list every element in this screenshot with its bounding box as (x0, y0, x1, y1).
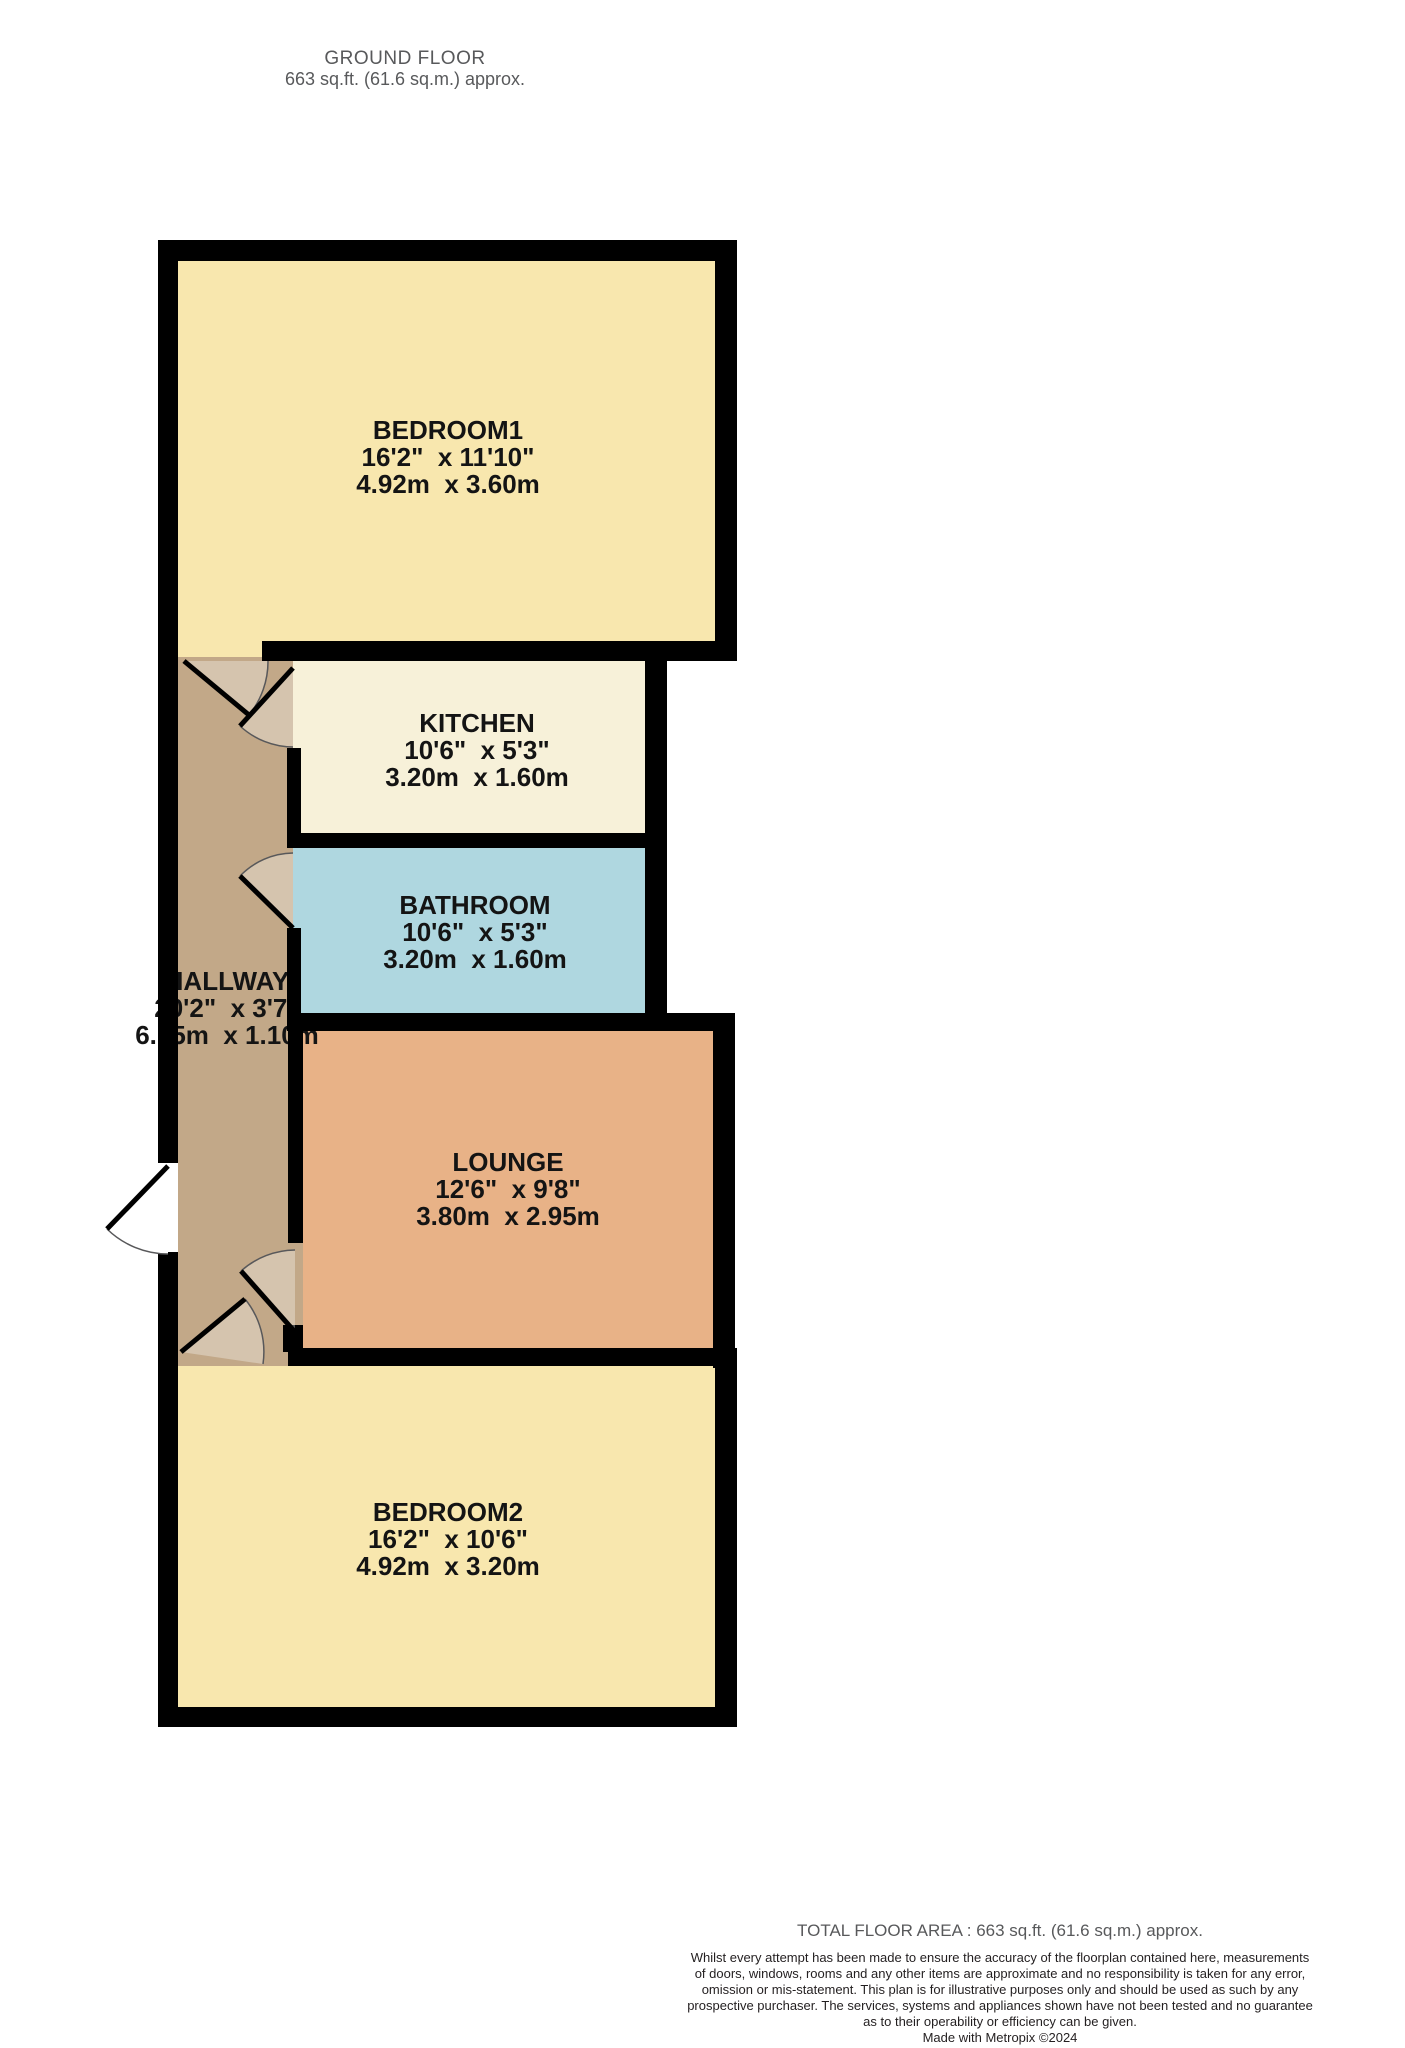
room-dims-metric: 4.92m x 3.60m (278, 471, 618, 498)
wall-top (158, 240, 737, 261)
room-label-bedroom2: BEDROOM2 16'2" x 10'6" 4.92m x 3.20m (278, 1499, 618, 1580)
metropix-credit: Made with Metropix ©2024 (640, 2030, 1360, 2046)
wall-bedroom1-right (715, 240, 737, 661)
floor-title: GROUND FLOOR (245, 48, 565, 69)
wall-kitchen-bathroom-divider (287, 833, 667, 848)
door-entrance-swing (107, 1166, 168, 1254)
disclaimer-text: Whilst every attempt has been made to en… (640, 1950, 1360, 2030)
wall-bedroom2-right (715, 1348, 737, 1727)
wall-left-lower (158, 1252, 178, 1727)
room-name: BEDROOM2 (278, 1499, 618, 1526)
room-dims-imperial: 10'6" x 5'3" (307, 737, 647, 764)
room-dims-imperial: 16'2" x 10'6" (278, 1526, 618, 1553)
room-label-bathroom: BATHROOM 10'6" x 5'3" 3.20m x 1.60m (305, 892, 645, 973)
wall-hall-lounge-divider (288, 1031, 303, 1243)
wall-left-upper (158, 240, 178, 1163)
room-label-kitchen: KITCHEN 10'6" x 5'3" 3.20m x 1.60m (307, 710, 647, 791)
plan-footer: TOTAL FLOOR AREA : 663 sq.ft. (61.6 sq.m… (640, 1920, 1360, 2046)
room-label-lounge: LOUNGE 12'6" x 9'8" 3.80m x 2.95m (338, 1149, 678, 1230)
room-label-bedroom1: BEDROOM1 16'2" x 11'10" 4.92m x 3.60m (278, 417, 618, 498)
floorplan-page: GROUND FLOOR 663 sq.ft. (61.6 sq.m.) app… (0, 0, 1405, 2048)
plan-header: GROUND FLOOR 663 sq.ft. (61.6 sq.m.) app… (245, 48, 565, 89)
wall-bathroom-bottom (287, 1013, 735, 1031)
floor-area-subtitle: 663 sq.ft. (61.6 sq.m.) approx. (245, 69, 565, 89)
room-name: LOUNGE (338, 1149, 678, 1176)
room-name: KITCHEN (307, 710, 647, 737)
room-dims-imperial: 10'6" x 5'3" (305, 919, 645, 946)
room-label-hallway: HALLWAY 20'2" x 3'7" 6.15m x 1.10m (57, 968, 397, 1049)
wall-bedroom2-top (288, 1348, 735, 1366)
room-name: BATHROOM (305, 892, 645, 919)
room-dims-metric: 3.20m x 1.60m (307, 764, 647, 791)
room-dims-imperial: 12'6" x 9'8" (338, 1176, 678, 1203)
room-dims-imperial: 16'2" x 11'10" (278, 444, 618, 471)
total-floor-area: TOTAL FLOOR AREA : 663 sq.ft. (61.6 sq.m… (640, 1920, 1360, 1942)
room-name: HALLWAY (57, 968, 397, 995)
door-entrance-leaf (107, 1166, 168, 1229)
door-entrance-arc (107, 1229, 168, 1254)
wall-bedroom2-bottom (158, 1707, 737, 1727)
room-dims-metric: 3.80m x 2.95m (338, 1203, 678, 1230)
room-dims-metric: 4.92m x 3.20m (278, 1553, 618, 1580)
wall-lounge-right (713, 1013, 735, 1368)
room-name: BEDROOM1 (278, 417, 618, 444)
